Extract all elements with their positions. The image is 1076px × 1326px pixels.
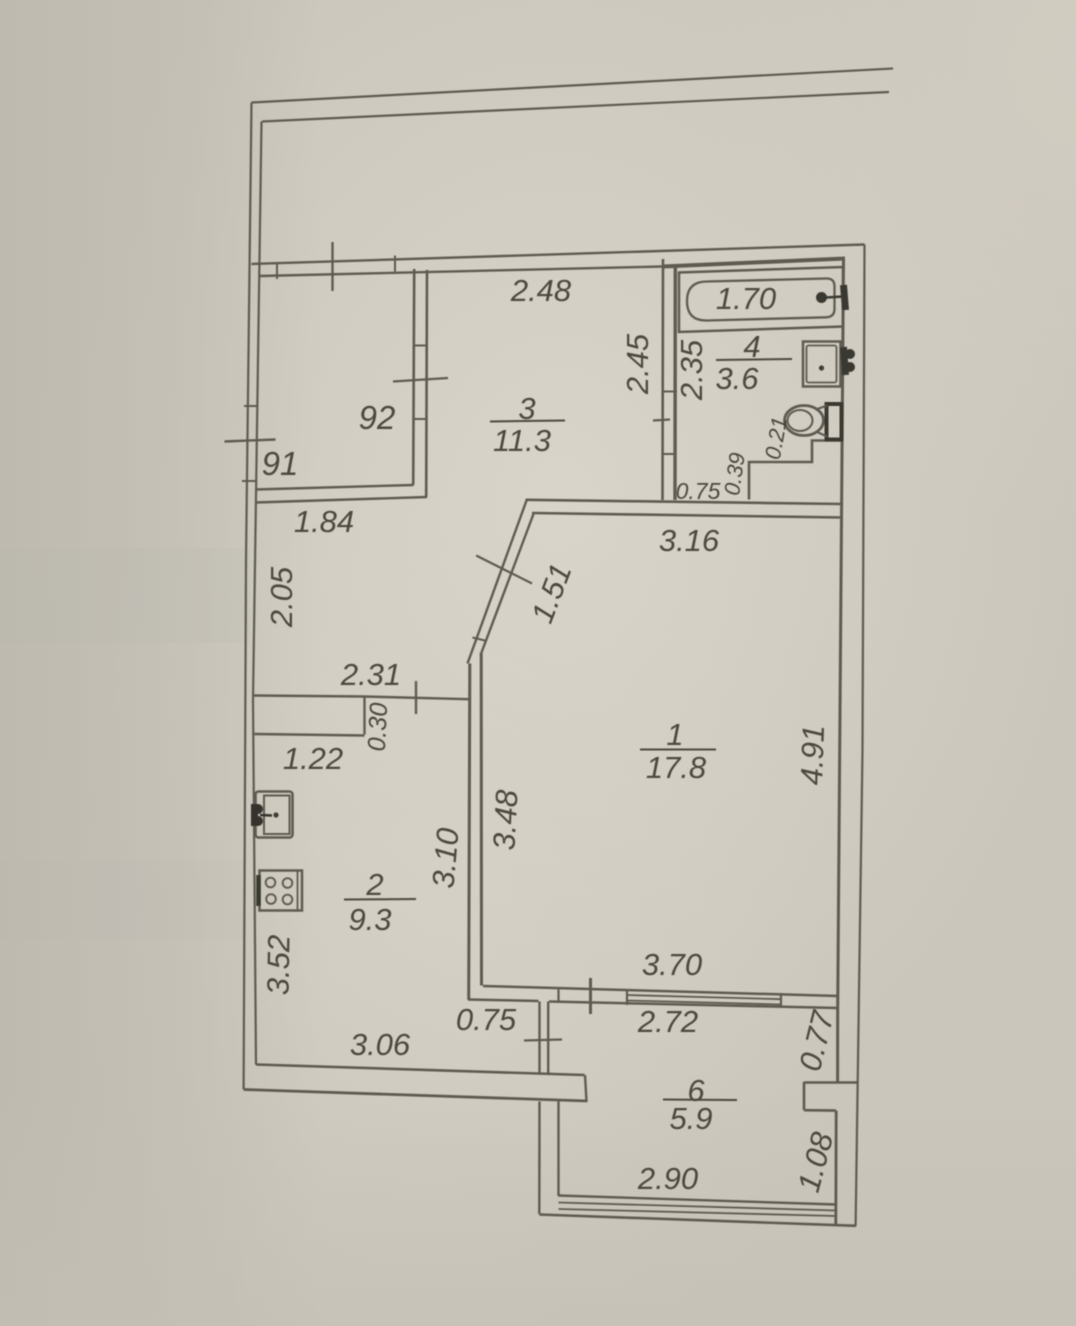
svg-text:3.16: 3.16 [659, 523, 720, 558]
svg-text:2.45: 2.45 [620, 333, 655, 395]
svg-text:2.35: 2.35 [674, 339, 709, 401]
svg-text:2.72: 2.72 [637, 1004, 698, 1039]
svg-text:2.48: 2.48 [510, 273, 572, 308]
svg-text:2: 2 [365, 867, 383, 902]
svg-text:2.31: 2.31 [340, 657, 401, 692]
svg-text:0.75: 0.75 [456, 1002, 517, 1037]
svg-text:1.70: 1.70 [716, 281, 776, 316]
svg-text:17.8: 17.8 [646, 750, 707, 785]
svg-text:3.06: 3.06 [350, 1027, 411, 1062]
svg-text:0.30: 0.30 [363, 702, 394, 752]
svg-text:4.91: 4.91 [794, 724, 831, 786]
svg-text:3.6: 3.6 [715, 361, 759, 396]
svg-text:2.05: 2.05 [264, 566, 299, 628]
svg-text:11.3: 11.3 [493, 423, 551, 458]
svg-text:3.70: 3.70 [642, 947, 702, 982]
svg-text:3.52: 3.52 [260, 935, 296, 996]
svg-text:2.90: 2.90 [637, 1161, 698, 1196]
svg-text:1.84: 1.84 [294, 504, 354, 539]
svg-text:9.3: 9.3 [348, 902, 391, 937]
svg-text:1: 1 [666, 717, 683, 752]
svg-text:91: 91 [262, 445, 299, 482]
svg-text:3.48: 3.48 [486, 788, 524, 851]
svg-text:0.75: 0.75 [676, 478, 721, 504]
svg-text:3.10: 3.10 [425, 826, 465, 889]
svg-text:5.9: 5.9 [669, 1101, 712, 1136]
svg-text:1.22: 1.22 [283, 741, 343, 776]
svg-text:92: 92 [359, 399, 396, 436]
